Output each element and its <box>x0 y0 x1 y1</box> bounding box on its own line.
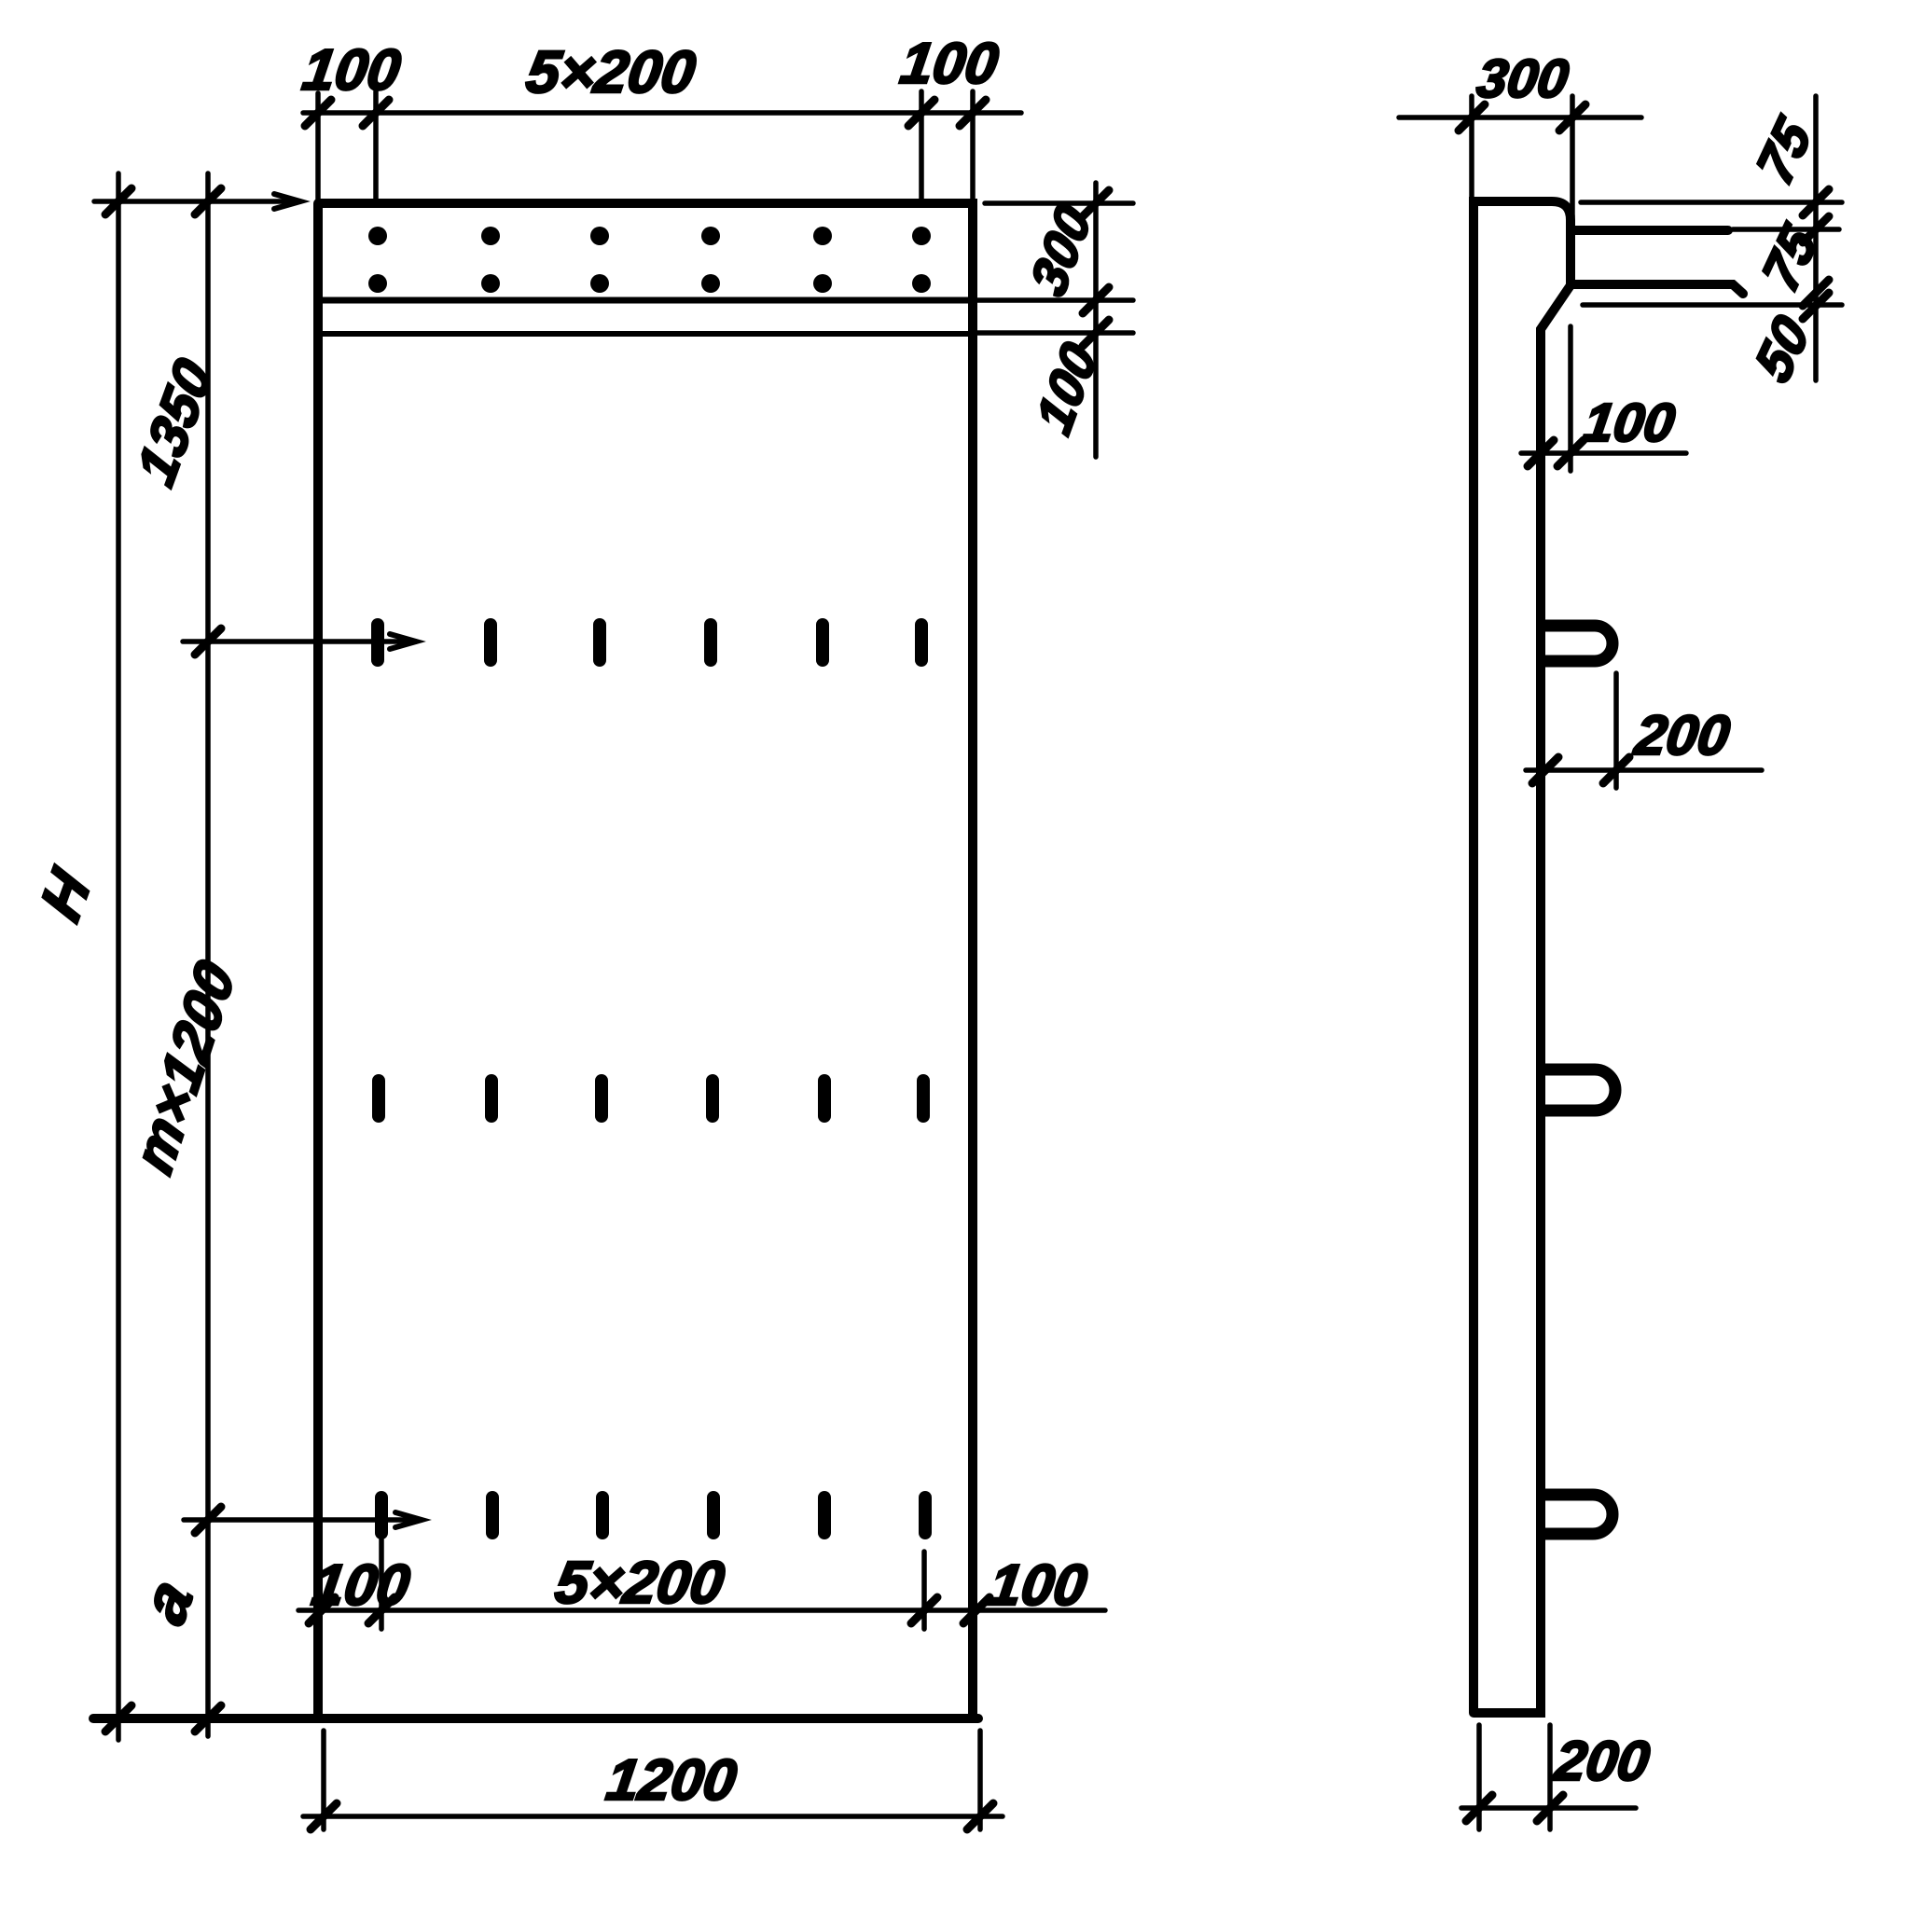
svg-text:300: 300 <box>1474 48 1572 109</box>
svg-text:100: 100 <box>985 1553 1090 1618</box>
svg-text:100: 100 <box>308 1553 413 1618</box>
svg-text:5×200: 5×200 <box>551 1549 728 1616</box>
svg-text:100: 100 <box>896 32 1002 96</box>
svg-text:100: 100 <box>298 38 404 103</box>
svg-text:200: 200 <box>1550 1729 1654 1792</box>
svg-text:1200: 1200 <box>602 1748 740 1813</box>
svg-text:200: 200 <box>1630 703 1734 766</box>
svg-text:5×200: 5×200 <box>522 38 699 105</box>
svg-text:100: 100 <box>1580 393 1679 453</box>
